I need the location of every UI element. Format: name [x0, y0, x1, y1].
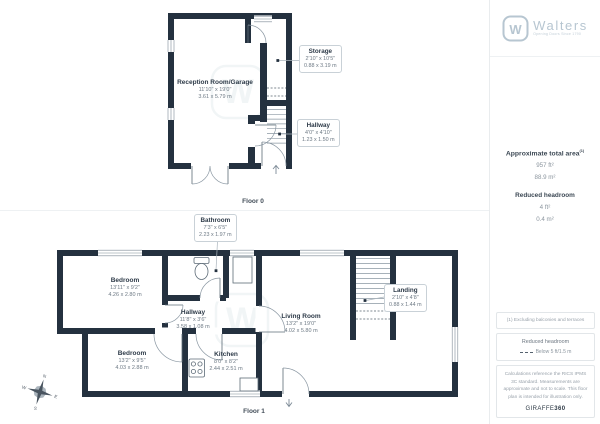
svg-text:N: N [42, 373, 47, 379]
reduced-headroom-line [267, 88, 286, 96]
room-label-bedroom-2: Bedroom 13'2" x 9'5" 4.03 x 2.88 m [115, 350, 148, 372]
info-sidebar: W Walters Opening Doors Since 1790 Appro… [489, 0, 600, 424]
total-area-m: 88.9 m² [490, 174, 600, 181]
room-label-living-room: Living Room 13'2" x 19'0" 4.02 x 5.80 m [281, 313, 320, 335]
reduced-headroom-title: Reduced headroom [490, 192, 600, 199]
legend-box: Reduced headroom Below 5 ft/1.5 m [496, 333, 595, 361]
floor1-plan [60, 241, 459, 407]
reduced-headroom-m: 0.4 m² [490, 216, 600, 223]
walters-logo-icon: W [502, 15, 529, 42]
svg-text:W: W [21, 385, 27, 391]
sink-unit-icon [240, 378, 258, 391]
disclaimer-box: Calculations reference the RICS IPMS 3C … [496, 365, 595, 418]
entry-door-opening [282, 391, 309, 398]
brand-name: Walters [533, 19, 588, 32]
toilet-icon [194, 258, 209, 280]
room-label-hallway: Hallway 11'8" x 3'6" 3.58 x 1.08 m [176, 309, 209, 331]
reduced-headroom-ft: 4 ft² [490, 204, 600, 211]
entry-arrow-down-icon [286, 399, 292, 407]
svg-text:S: S [33, 406, 37, 412]
giraffe360-logo: GIRAFFE360 [503, 406, 588, 412]
room-label-reception-garage: Reception Room/Garage 11'10" x 19'0" 3.6… [177, 79, 253, 101]
compass-icon: N E S W [17, 369, 63, 416]
brand-logo: W Walters Opening Doors Since 1790 [490, 0, 600, 57]
floorplan-canvas: W W [0, 0, 490, 424]
floor0-caption: Floor 0 [242, 198, 264, 205]
floor-section-divider [0, 210, 489, 211]
room-label-kitchen: Kitchen 8'0" x 8'2" 2.44 x 2.51 m [209, 351, 242, 373]
reduced-headroom-line [356, 311, 390, 319]
room-label-bedroom-1: Bedroom 13'11" x 9'2" 4.26 x 2.80 m [108, 277, 141, 299]
floorplan-page: W W [0, 0, 600, 424]
svg-text:E: E [54, 394, 58, 400]
stove-icon [189, 359, 205, 377]
callout-bathroom: Bathroom 7'3" x 6'5" 2.23 x 1.97 m [194, 214, 237, 242]
callout-hallway: Hallway 4'0" x 4'10" 1.23 x 1.50 m [297, 119, 340, 147]
total-area-title: Approximate total area(1) [490, 149, 600, 157]
svg-text:W: W [509, 22, 522, 37]
footnote-box: (1) Excluding balconies and terraces [496, 312, 595, 329]
dashed-line-sample [520, 352, 533, 353]
callout-landing: Landing 2'10" x 4'8" 0.88 x 1.44 m [384, 284, 427, 312]
callout-storage: Storage 2'10" x 10'5" 0.88 x 3.19 m [299, 45, 342, 73]
total-area-ft: 957 ft² [490, 162, 600, 169]
brand-tagline: Opening Doors Since 1790 [533, 33, 588, 37]
area-summary: Approximate total area(1) 957 ft² 88.9 m… [490, 57, 600, 223]
window [98, 249, 459, 397]
floor1-caption: Floor 1 [243, 408, 265, 415]
shower-icon [233, 257, 252, 283]
stairs [267, 110, 286, 144]
